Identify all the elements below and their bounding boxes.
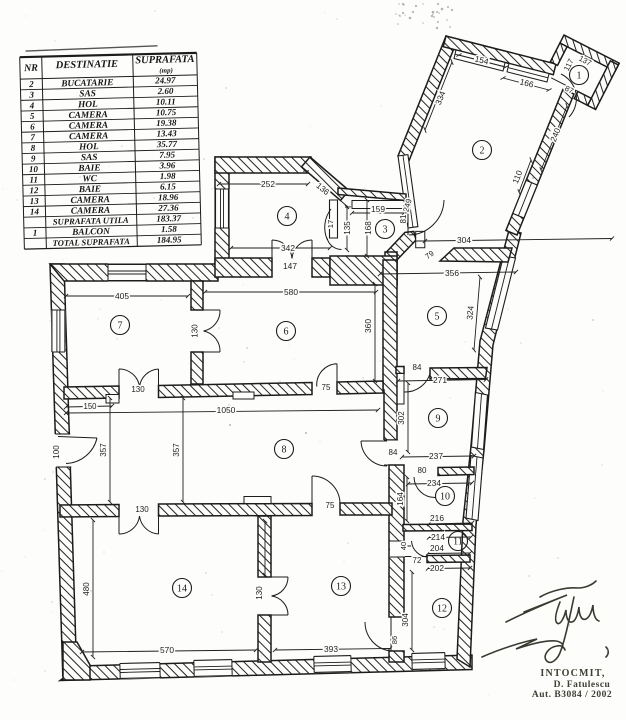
svg-text:150: 150 (83, 402, 97, 411)
svg-text:5: 5 (30, 111, 35, 121)
svg-text:3: 3 (28, 90, 34, 100)
svg-text:159: 159 (371, 204, 385, 214)
svg-text:480: 480 (82, 582, 91, 596)
svg-text:135: 135 (343, 221, 352, 235)
svg-text:NR: NR (23, 63, 38, 74)
svg-text:HOL: HOL (77, 100, 98, 111)
svg-text:360: 360 (363, 319, 373, 333)
svg-text:130: 130 (255, 586, 264, 600)
svg-text:1050: 1050 (217, 405, 236, 415)
svg-text:130: 130 (135, 505, 149, 514)
svg-text:10.11: 10.11 (156, 96, 176, 106)
svg-text:4: 4 (285, 211, 290, 222)
svg-text:CAMERA: CAMERA (68, 110, 108, 121)
svg-text:100: 100 (52, 445, 61, 459)
svg-text:CAMERA: CAMERA (69, 131, 109, 142)
svg-text:7: 7 (30, 132, 35, 142)
svg-text:9: 9 (31, 153, 36, 163)
svg-text:356: 356 (445, 268, 459, 278)
svg-text:234: 234 (427, 478, 441, 488)
svg-text:252: 252 (261, 179, 275, 189)
svg-text:14: 14 (177, 583, 187, 594)
svg-text:357: 357 (99, 443, 108, 457)
svg-text:570: 570 (160, 645, 174, 655)
svg-text:130: 130 (191, 324, 200, 338)
svg-text:84: 84 (413, 363, 422, 372)
svg-text:304: 304 (457, 235, 471, 245)
svg-text:2: 2 (28, 79, 34, 89)
svg-text:27.36: 27.36 (157, 203, 179, 214)
svg-text:10: 10 (29, 164, 39, 174)
svg-text:86: 86 (390, 636, 399, 644)
svg-text:75: 75 (322, 383, 331, 392)
svg-text:580: 580 (284, 287, 298, 297)
svg-text:13.43: 13.43 (156, 128, 177, 139)
svg-text:168: 168 (364, 221, 373, 235)
svg-text:10.75: 10.75 (156, 107, 177, 118)
svg-text:271: 271 (433, 375, 447, 385)
svg-text:CAMERA: CAMERA (70, 195, 110, 206)
svg-text:40: 40 (399, 542, 408, 550)
svg-text:17: 17 (326, 220, 335, 228)
svg-text:1: 1 (577, 70, 582, 81)
svg-text:6: 6 (284, 326, 289, 337)
svg-text:BAIE: BAIE (77, 163, 100, 174)
svg-text:164: 164 (396, 492, 405, 506)
svg-text:393: 393 (324, 644, 338, 654)
svg-text:357: 357 (172, 443, 181, 457)
svg-text:12: 12 (437, 603, 447, 614)
svg-text:8: 8 (282, 444, 287, 455)
svg-text:405: 405 (115, 291, 129, 301)
svg-text:7: 7 (118, 320, 123, 331)
svg-text:13: 13 (336, 581, 346, 592)
svg-text:INTOCMIT,: INTOCMIT, (540, 668, 605, 679)
svg-text:1.58: 1.58 (161, 224, 177, 234)
svg-text:84: 84 (389, 448, 398, 457)
svg-text:4: 4 (29, 100, 35, 110)
svg-text:Aut. B3084 / 2002: Aut. B3084 / 2002 (532, 690, 612, 700)
svg-text:BAIE: BAIE (78, 185, 101, 196)
svg-text:237: 237 (429, 451, 443, 461)
svg-text:204: 204 (430, 543, 444, 553)
svg-text:304: 304 (401, 613, 410, 627)
svg-text:10: 10 (440, 491, 450, 502)
svg-text:DESTINATIE: DESTINATIE (55, 59, 119, 72)
svg-text:2.60: 2.60 (157, 86, 174, 96)
svg-text:11: 11 (453, 536, 463, 547)
svg-text:SUPRAFATA: SUPRAFATA (135, 54, 194, 66)
svg-text:80: 80 (418, 466, 427, 475)
svg-text:183.37: 183.37 (156, 213, 181, 224)
svg-text:SUPRAFATA UTILA: SUPRAFATA UTILA (53, 215, 129, 227)
svg-text:81: 81 (399, 214, 408, 223)
svg-text:TOTAL SUPRAFATA: TOTAL SUPRAFATA (52, 236, 130, 248)
svg-text:2: 2 (480, 145, 485, 156)
svg-text:WC: WC (82, 174, 98, 184)
svg-text:214: 214 (431, 532, 445, 542)
svg-text:D. Fatulescu: D. Fatulescu (554, 680, 611, 690)
svg-text:13: 13 (30, 196, 40, 206)
svg-text:12: 12 (29, 185, 39, 195)
svg-text:14: 14 (30, 206, 40, 216)
svg-text:324: 324 (464, 305, 475, 320)
svg-text:19.38: 19.38 (156, 118, 177, 129)
svg-text:CAMERA: CAMERA (69, 121, 109, 132)
svg-text:6: 6 (30, 122, 35, 132)
svg-text:9: 9 (436, 413, 441, 424)
svg-text:1: 1 (33, 228, 38, 238)
svg-text:184.95: 184.95 (157, 234, 182, 245)
svg-text:72: 72 (413, 556, 422, 565)
svg-text:1.98: 1.98 (160, 171, 176, 181)
svg-text:HOL: HOL (78, 142, 99, 153)
svg-text:11: 11 (29, 175, 38, 185)
svg-text:BUCATARIE: BUCATARIE (60, 78, 113, 89)
svg-text:216: 216 (430, 513, 444, 523)
svg-text:6.15: 6.15 (160, 181, 176, 191)
svg-text:3: 3 (383, 224, 388, 235)
svg-text:8: 8 (31, 143, 36, 153)
svg-text:342: 342 (281, 243, 295, 253)
svg-text:5: 5 (435, 311, 440, 322)
svg-text:3.96: 3.96 (158, 160, 175, 170)
svg-text:7.95: 7.95 (159, 150, 175, 160)
svg-text:130: 130 (131, 385, 145, 394)
svg-text:SAS: SAS (81, 153, 98, 163)
svg-text:SAS: SAS (79, 89, 96, 99)
svg-text:18.96: 18.96 (158, 192, 179, 203)
svg-text:202: 202 (430, 563, 444, 573)
svg-text:24.97: 24.97 (154, 75, 176, 86)
svg-text:75: 75 (326, 501, 335, 510)
svg-text:302: 302 (397, 411, 406, 425)
svg-text:147: 147 (283, 261, 297, 271)
svg-text:35.77: 35.77 (156, 139, 178, 150)
svg-text:(mp): (mp) (159, 66, 173, 74)
